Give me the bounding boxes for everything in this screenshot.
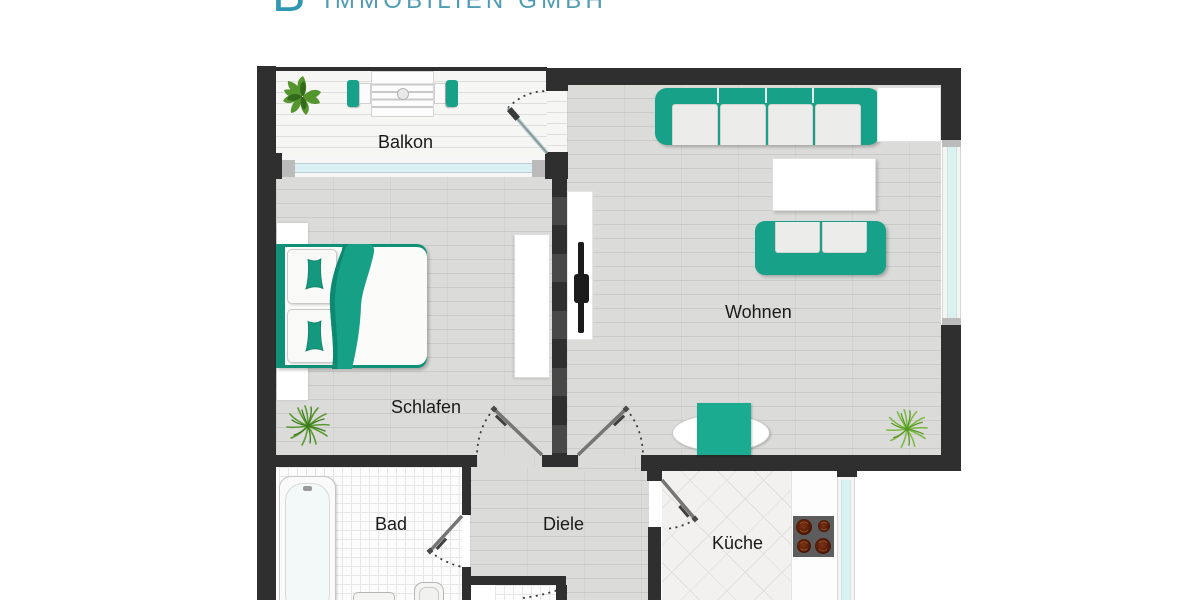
- svg-text:IMMOBILIEN GMBH: IMMOBILIEN GMBH: [324, 0, 607, 12]
- svg-text:B: B: [272, 0, 305, 14]
